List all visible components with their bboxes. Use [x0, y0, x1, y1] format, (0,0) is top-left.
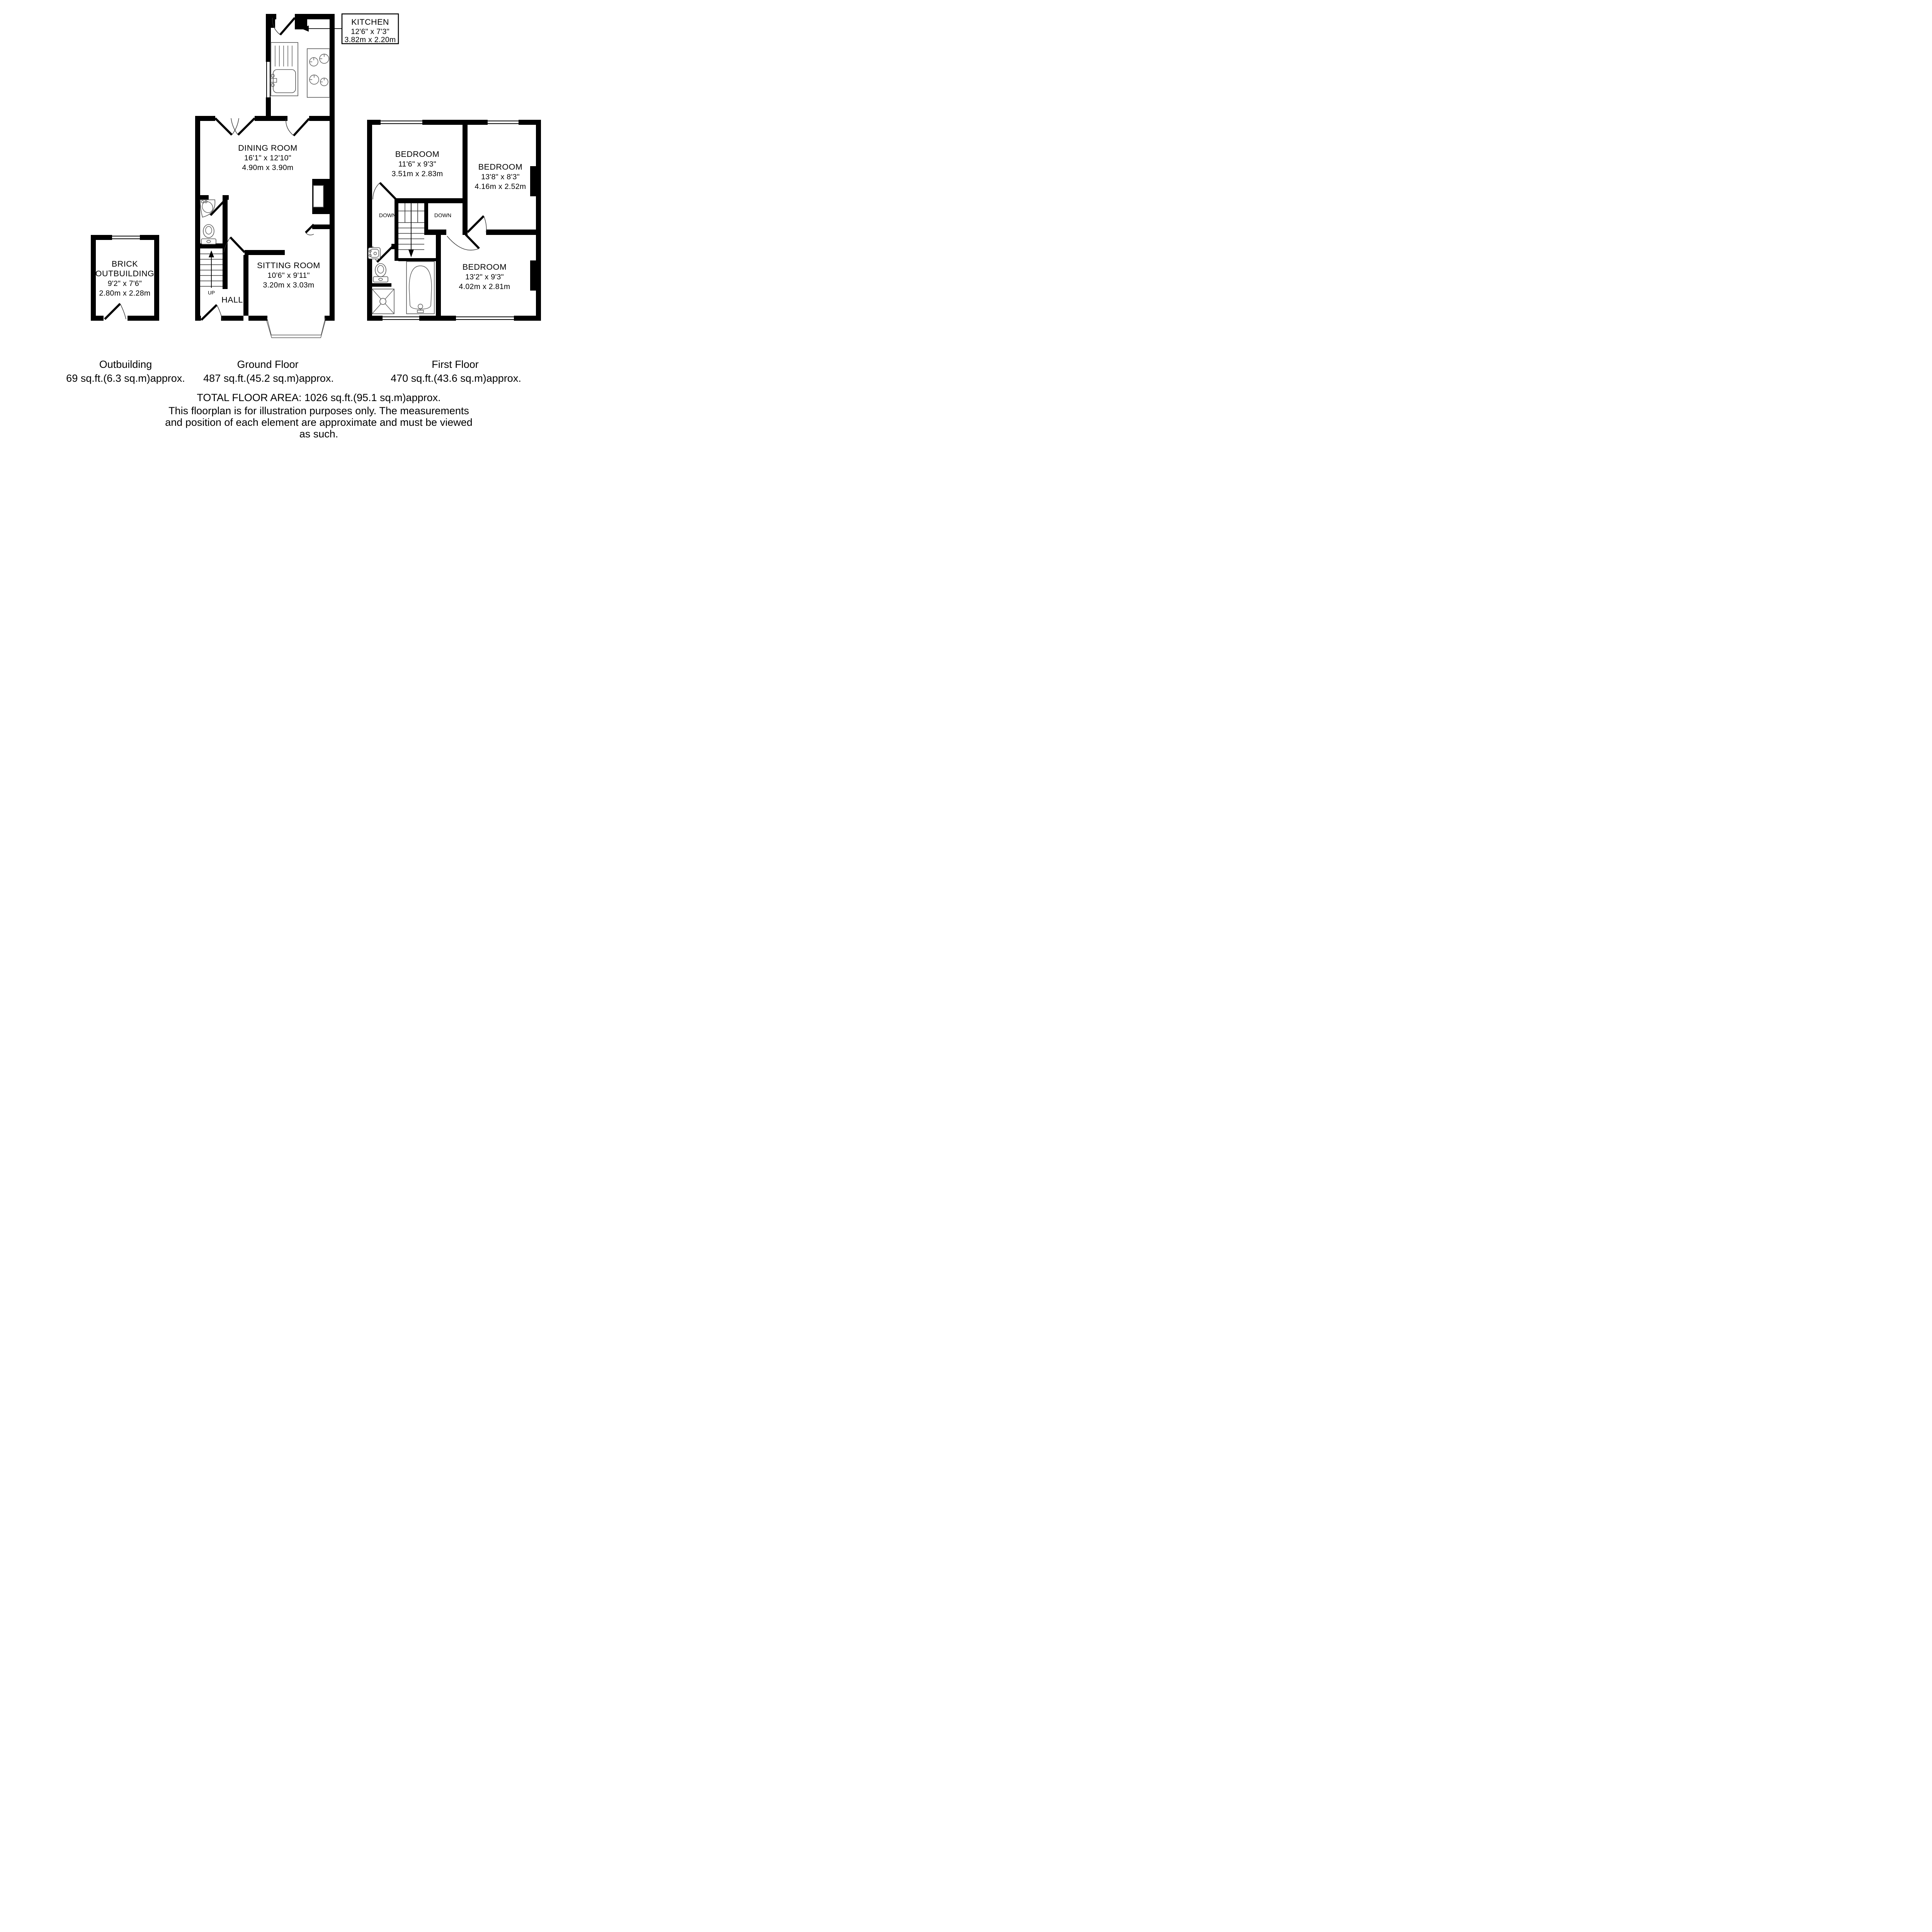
stairs-down [398, 202, 424, 257]
bathtub-icon [406, 262, 434, 314]
ground-floor-plan: UP DINING ROOM 16'1" x 12'10" 4.90m x 3.… [195, 116, 335, 338]
hall-label: HALL [221, 295, 243, 304]
outbuilding-imperial: 9'2" x 7'6" [108, 279, 142, 288]
outbuilding-line1: BRICK [112, 259, 138, 269]
ground-caption-title: Ground Floor [237, 359, 298, 370]
stove-hob-icon [307, 49, 330, 97]
kitchen-name: KITCHEN [351, 17, 389, 27]
kitchen-dining-door-icon [294, 119, 309, 136]
bedroom2-metric: 4.16m x 2.52m [475, 182, 526, 191]
bathroom-toilet-icon [373, 264, 388, 282]
bedroom3-metric: 4.02m x 2.81m [459, 282, 510, 291]
stairs-down-arrow-icon [408, 250, 414, 257]
french-door-right-icon [238, 118, 255, 135]
outbuilding-plan: BRICK OUTBUILDING 9'2" x 7'6" 2.80m x 2.… [91, 235, 159, 321]
dining-metric: 4.90m x 3.90m [242, 163, 294, 172]
disclaimer-line2: and position of each element are approxi… [165, 417, 473, 428]
fireplace-icon [313, 185, 323, 207]
wc-toilet-icon [201, 224, 216, 244]
floorplan-page: KITCHEN 12'6" x 7'3" 3.82m x 2.20m [0, 0, 597, 444]
sitting-name: SITTING ROOM [257, 261, 320, 270]
kitchen-metric: 3.82m x 2.20m [345, 36, 396, 44]
bedroom2-name: BEDROOM [478, 162, 523, 172]
stairs-up-label: UP [208, 290, 215, 296]
bedroom3-name: BEDROOM [463, 262, 507, 272]
footer-disclaimer: TOTAL FLOOR AREA: 1026 sq.ft.(95.1 sq.m)… [165, 392, 473, 440]
dining-name: DINING ROOM [238, 143, 298, 153]
outbuilding-caption-area: 69 sq.ft.(6.3 sq.m)approx. [66, 372, 185, 384]
bedroom1-imperial: 11'6" x 9'3" [398, 160, 436, 168]
bedroom2-door-icon [468, 216, 484, 232]
hall-door-icon [230, 237, 245, 252]
sitting-imperial: 10'6" x 9'11" [267, 271, 310, 280]
first-floor-plan: DOWN DOWN [367, 120, 541, 321]
down-right-label: DOWN [434, 212, 451, 218]
total-floor-area: TOTAL FLOOR AREA: 1026 sq.ft.(95.1 sq.m)… [197, 392, 440, 403]
bathroom-sink-icon [368, 248, 380, 259]
bay-window-icon [264, 316, 328, 338]
bedroom2-chimney-icon [530, 166, 536, 196]
french-door-left-icon [215, 118, 232, 135]
bedroom3-door-icon [466, 235, 479, 248]
floorplan-drawing: KITCHEN 12'6" x 7'3" 3.82m x 2.20m [0, 0, 597, 444]
bedroom3-imperial: 13'2" x 9'3" [465, 273, 504, 281]
first-caption-area: 470 sq.ft.(43.6 sq.m)approx. [391, 372, 521, 384]
bedroom2-imperial: 13'8" x 8'3" [481, 173, 520, 181]
bedroom3-chimney-icon [530, 260, 536, 291]
bedroom1-metric: 3.51m x 2.83m [392, 170, 443, 178]
stairs-up [200, 250, 223, 288]
sitting-metric: 3.20m x 3.03m [263, 281, 315, 289]
down-left-label: DOWN [379, 212, 396, 218]
wc-sink-icon [200, 199, 215, 217]
kitchen-back-door-icon [280, 18, 295, 35]
outbuilding-line2: OUTBUILDING [95, 269, 154, 278]
outbuilding-door-icon [105, 304, 120, 319]
floor-captions: Outbuilding 69 sq.ft.(6.3 sq.m)approx. G… [66, 359, 521, 384]
disclaimer-line3: as such. [299, 428, 338, 440]
first-caption-title: First Floor [432, 359, 479, 370]
kitchen-sink-icon [270, 43, 298, 96]
kitchen-wing [266, 14, 335, 136]
outbuilding-caption-title: Outbuilding [99, 359, 152, 370]
outbuilding-metric: 2.80m x 2.28m [99, 289, 151, 298]
shower-icon [372, 289, 394, 314]
bedroom1-name: BEDROOM [395, 150, 440, 159]
ground-caption-area: 487 sq.ft.(45.2 sq.m)approx. [203, 372, 334, 384]
disclaimer-line1: This floorplan is for illustration purpo… [168, 405, 469, 417]
kitchen-imperial: 12'6" x 7'3" [351, 27, 389, 36]
bedroom1-door-icon [380, 183, 396, 199]
front-door-icon [201, 305, 217, 320]
dining-imperial: 16'1" x 12'10" [244, 154, 291, 162]
